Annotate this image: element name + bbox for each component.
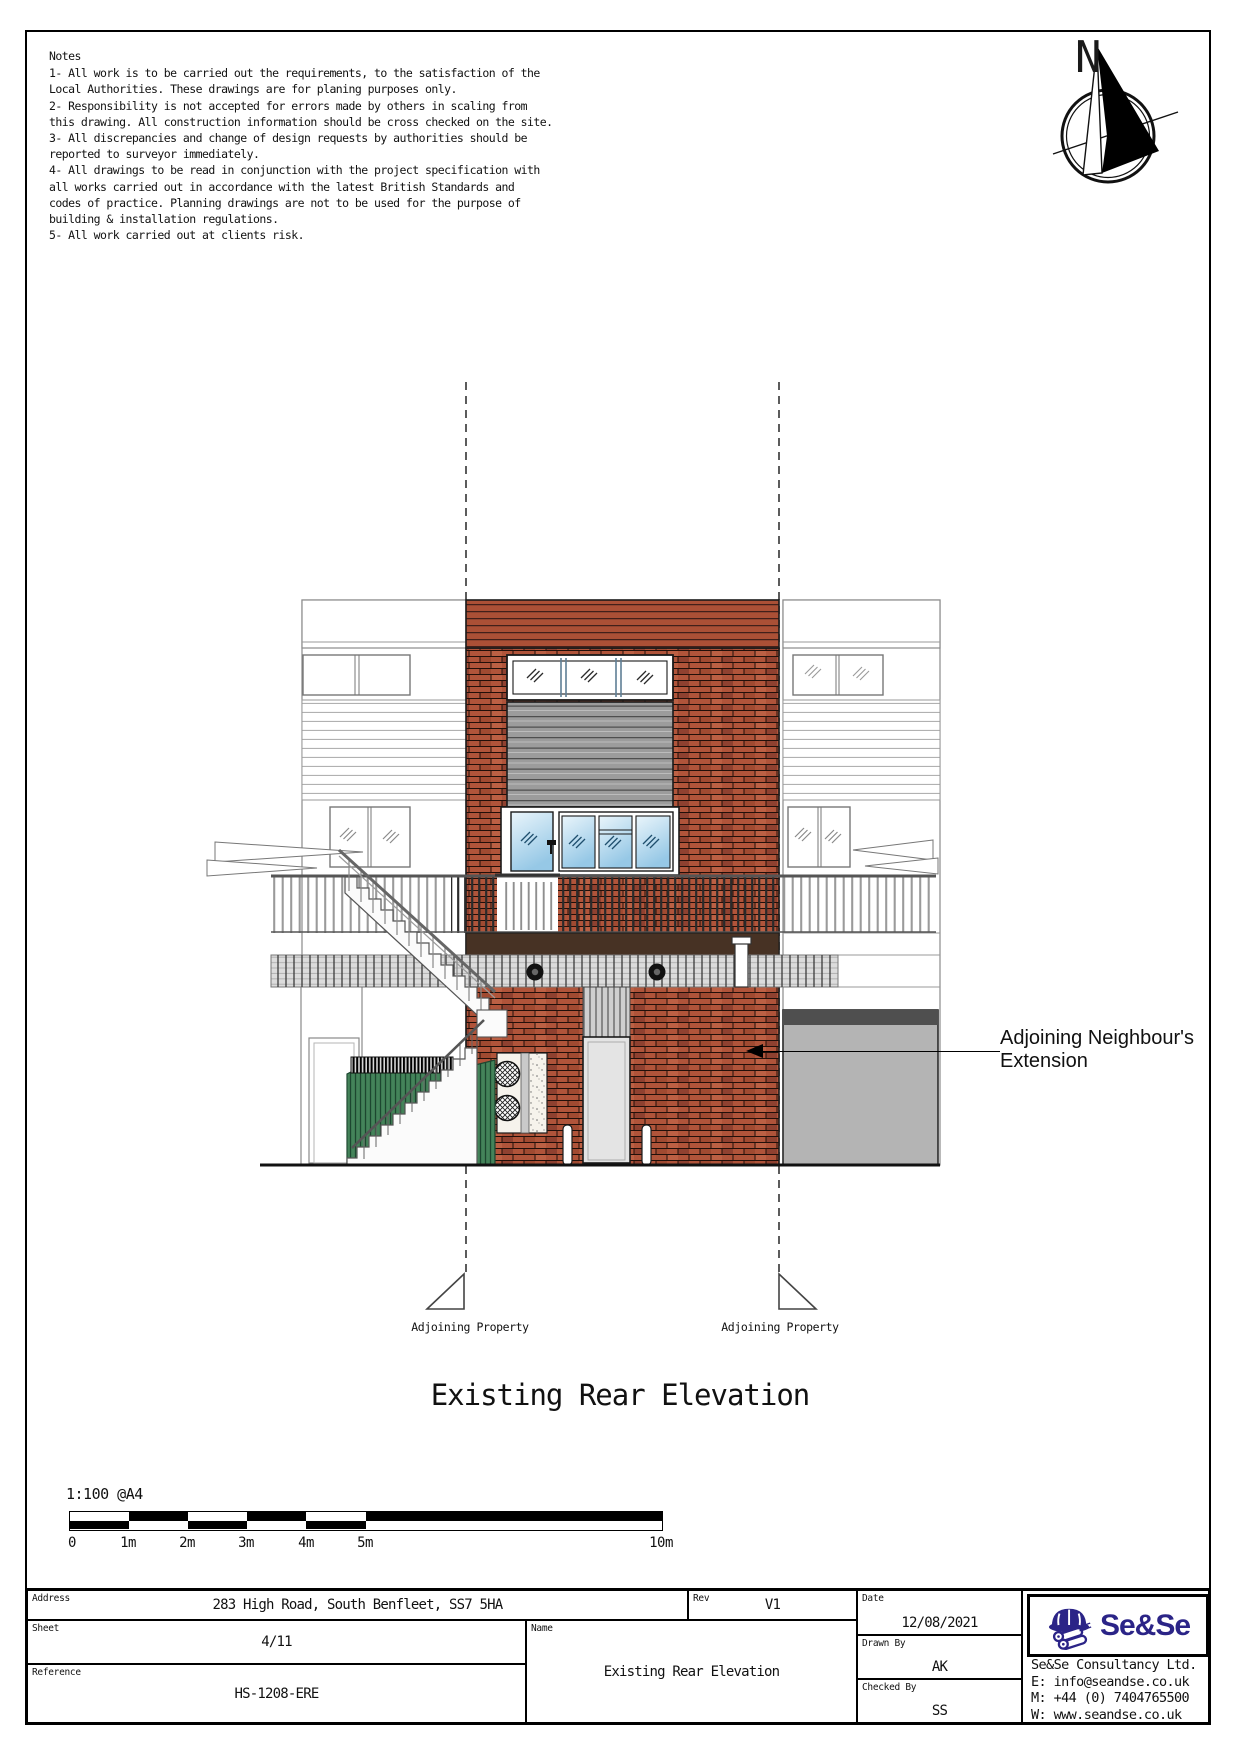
checked-by-cell: Checked By SS <box>857 1679 1022 1723</box>
company-cell: Se&Se Se&Se Consultancy Ltd. E: info@sea… <box>1022 1590 1209 1723</box>
drawing-sheet: Notes 1- All work is to be carried out t… <box>0 0 1240 1755</box>
name-cell: Name Existing Rear Elevation <box>526 1620 857 1723</box>
scale-ratio: 1:100 @A4 <box>66 1485 143 1503</box>
hardhat-pipes-icon <box>1046 1602 1096 1650</box>
scale-tick: 1m <box>120 1535 136 1551</box>
notes-heading: Notes <box>49 48 519 64</box>
elevation-drawing <box>205 380 945 1325</box>
company-mobile: M: +44 (0) 7404765500 <box>1031 1690 1197 1707</box>
extractor-fan <box>495 1062 520 1087</box>
drawn-by-cell: Drawn By AK <box>857 1635 1022 1679</box>
notes-line: building & installation regulations. <box>49 211 519 227</box>
reference-value: HS-1208-ERE <box>28 1665 525 1722</box>
company-name: Se&Se Consultancy Ltd. <box>1031 1657 1197 1674</box>
sheet-value: 4/11 <box>28 1621 525 1663</box>
rev-cell: Rev V1 <box>688 1590 857 1620</box>
checked-by-value: SS <box>858 1680 1021 1732</box>
company-email: E: info@seandse.co.uk <box>1031 1674 1197 1691</box>
rev-value: V1 <box>689 1591 856 1619</box>
bollard <box>563 1125 572 1165</box>
notes-line: reported to surveyor immediately. <box>49 146 519 162</box>
roof-cladding <box>466 600 779 648</box>
name-value: Existing Rear Elevation <box>527 1621 856 1722</box>
notes-line: this drawing. All construction informati… <box>49 114 519 130</box>
notes-line: 2- Responsibility is not accepted for er… <box>49 98 519 114</box>
upper-window <box>507 655 673 700</box>
adjoining-property-label-left: Adjoining Property <box>390 1320 550 1334</box>
title-block: Address 283 High Road, South Benfleet, S… <box>25 1588 1211 1725</box>
notes-line: 5- All work carried out at clients risk. <box>49 227 519 243</box>
notes-line: all works carried out in accordance with… <box>49 179 519 195</box>
date-cell: Date 12/08/2021 <box>857 1590 1022 1635</box>
leader-arrowhead <box>746 1044 763 1058</box>
company-contact: Se&Se Consultancy Ltd. E: info@seandse.c… <box>1031 1657 1197 1723</box>
scale-tick: 4m <box>298 1535 314 1551</box>
notes-line: Local Authorities. These drawings are fo… <box>49 81 519 97</box>
vent-panel <box>495 1053 548 1133</box>
door-top-slats <box>583 987 630 1037</box>
roller-shutter <box>507 702 673 807</box>
scale-tick: 3m <box>238 1535 254 1551</box>
ground-floor-door <box>583 1037 630 1163</box>
newel-post <box>735 942 748 987</box>
scale-tick: 2m <box>179 1535 195 1551</box>
svg-text:N: N <box>1075 32 1102 83</box>
notes-line: 4- All drawings to be read in conjunctio… <box>49 162 519 178</box>
sheet-cell: Sheet 4/11 <box>27 1620 526 1664</box>
drawing-title: Existing Rear Elevation <box>250 1378 990 1412</box>
door-handle <box>547 840 556 845</box>
notes-line: codes of practice. Planning drawings are… <box>49 195 519 211</box>
extension-annotation: Adjoining Neighbour's Extension <box>1000 1027 1230 1073</box>
scale-tick: 5m <box>357 1535 373 1551</box>
bollard <box>642 1125 651 1165</box>
address-cell: Address 283 High Road, South Benfleet, S… <box>27 1590 688 1620</box>
north-arrow-icon: N <box>1035 32 1185 200</box>
scale-bar <box>69 1511 663 1531</box>
address-value: 283 High Road, South Benfleet, SS7 5HA <box>28 1591 687 1619</box>
boundary-markers <box>427 1274 816 1309</box>
scale-tick: 0 <box>68 1535 76 1551</box>
extractor-fan <box>495 1096 520 1121</box>
reference-cell: Reference HS-1208-ERE <box>27 1664 526 1723</box>
scale-tick: 10m <box>649 1535 673 1551</box>
logo-text: Se&Se <box>1100 1609 1190 1643</box>
company-web: W: www.seandse.co.uk <box>1031 1707 1197 1724</box>
notes-block: Notes 1- All work is to be carried out t… <box>49 48 519 243</box>
balcony-door-and-window <box>501 807 679 875</box>
adjoining-property-label-right: Adjoining Property <box>700 1320 860 1334</box>
leader-line <box>762 1051 1000 1052</box>
notes-line: 3- All discrepancies and change of desig… <box>49 130 519 146</box>
notes-line: 1- All work is to be carried out the req… <box>49 65 519 81</box>
company-logo: Se&Se <box>1027 1594 1209 1657</box>
